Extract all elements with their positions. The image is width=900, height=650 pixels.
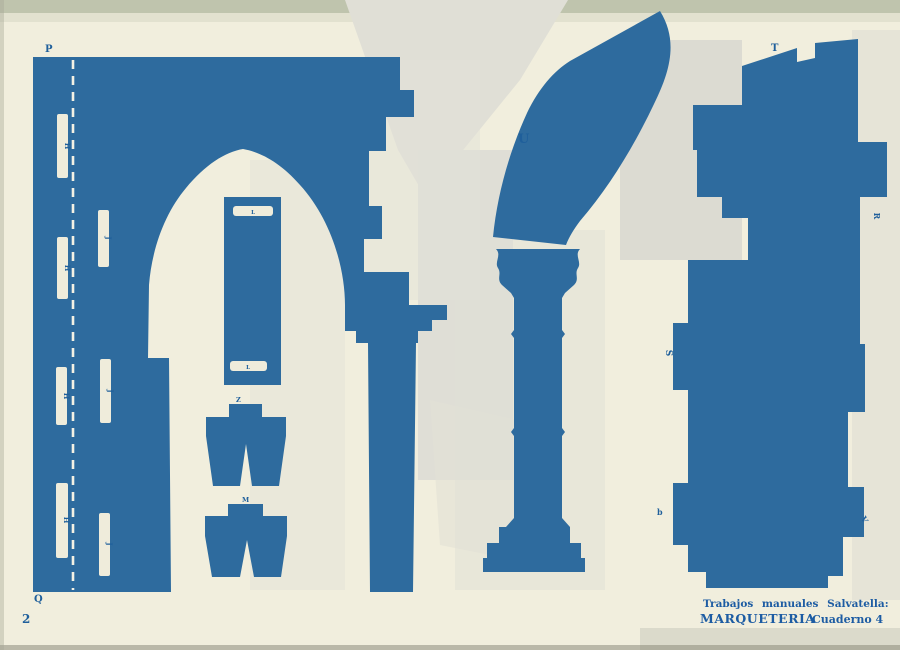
footer-brand: MARQUETERIA [700,611,816,626]
slot-label-l: L [251,210,255,216]
right-wall-shape [673,39,887,588]
label-z: Z [236,396,241,404]
page-number: 2 [22,612,30,626]
slot-label-j: J [105,541,114,546]
footer-series-title: Trabajos manuales Salvatella: [703,598,889,610]
slot-label-h: H [62,393,71,400]
center-rail-piece: L L [224,197,281,385]
center-rail-shape [224,197,281,385]
scan-edge-shadow [0,0,4,650]
label-p: P [45,44,53,55]
scan-edge-shadow [0,645,900,650]
label-s: S [663,350,673,357]
label-b: b [657,507,663,517]
slot-label-h: H [62,517,71,524]
label-t: T [771,43,779,54]
label-q: Q [34,594,43,605]
pattern-sheet: H J H J H H J L L Z M U [0,0,900,650]
label-r: R [872,213,882,220]
label-m: M [242,496,249,504]
slot-label-h: H [63,143,72,150]
slot-label-j: J [104,235,113,240]
footer-issue: Cuaderno 4 [812,613,884,626]
slot-label-j: J [106,388,115,393]
slot-label-h: H [63,265,72,272]
label-u: U [518,132,530,147]
slot-label-l: L [246,365,250,371]
